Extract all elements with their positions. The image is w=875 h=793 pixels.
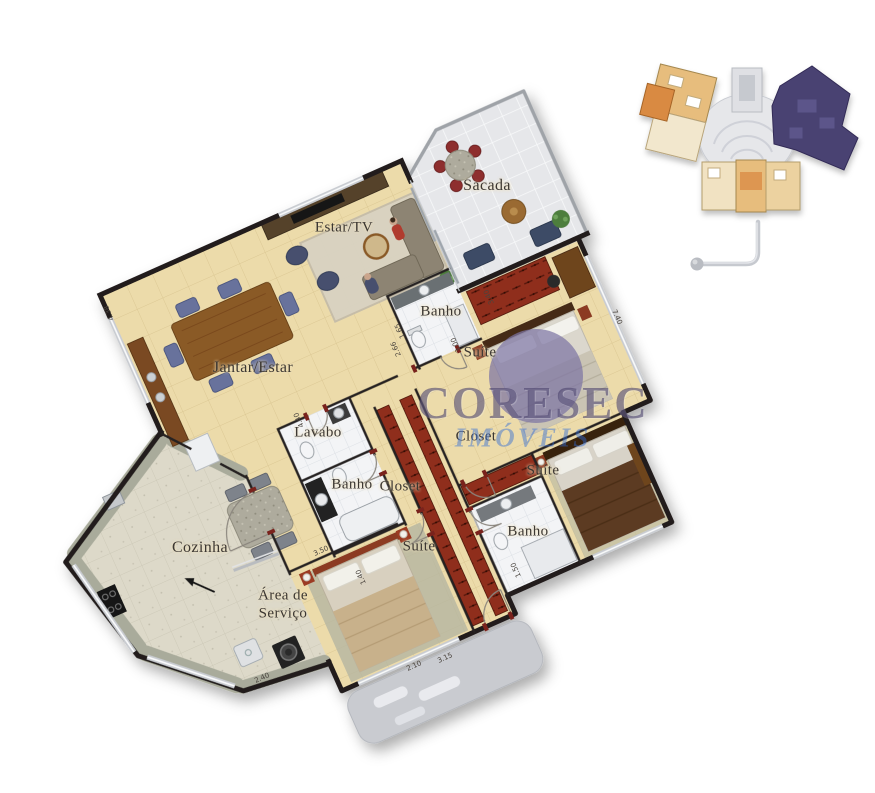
unit-plan: [0, 91, 742, 793]
floorplan-image: Sacada Estar/TV Banho Suíte Jantar/Estar…: [0, 0, 875, 793]
room-label-closet-2: Closet: [380, 479, 421, 496]
room-label-banho-1: Banho: [420, 304, 461, 321]
room-label-jantar-estar: Jantar/Estar: [213, 359, 293, 377]
room-label-suite-3: Suíte: [403, 539, 436, 556]
room-label-area-servico-line2: Serviço: [258, 605, 308, 623]
room-label-area-servico-line1: Área de: [258, 587, 308, 605]
bottom-units: [702, 160, 800, 212]
room-label-estar-tv: Estar/TV: [315, 220, 373, 237]
room-label-suite-1: Suíte: [464, 345, 497, 362]
room-label-banho-3: Banho: [507, 524, 548, 541]
room-label-area-servico: Área de Serviço: [258, 587, 308, 622]
room-label-banho-2: Banho: [331, 477, 372, 494]
unit-pointer-icon: [691, 222, 759, 271]
room-label-suite-2: Suíte: [527, 463, 560, 480]
watermark-line2: IMÓVEIS: [455, 423, 592, 454]
room-label-cozinha: Cozinha: [172, 539, 228, 557]
watermark-line1: CORESEC: [417, 377, 649, 429]
building-overview-inset: [632, 62, 858, 212]
room-label-sacada: Sacada: [463, 177, 511, 195]
